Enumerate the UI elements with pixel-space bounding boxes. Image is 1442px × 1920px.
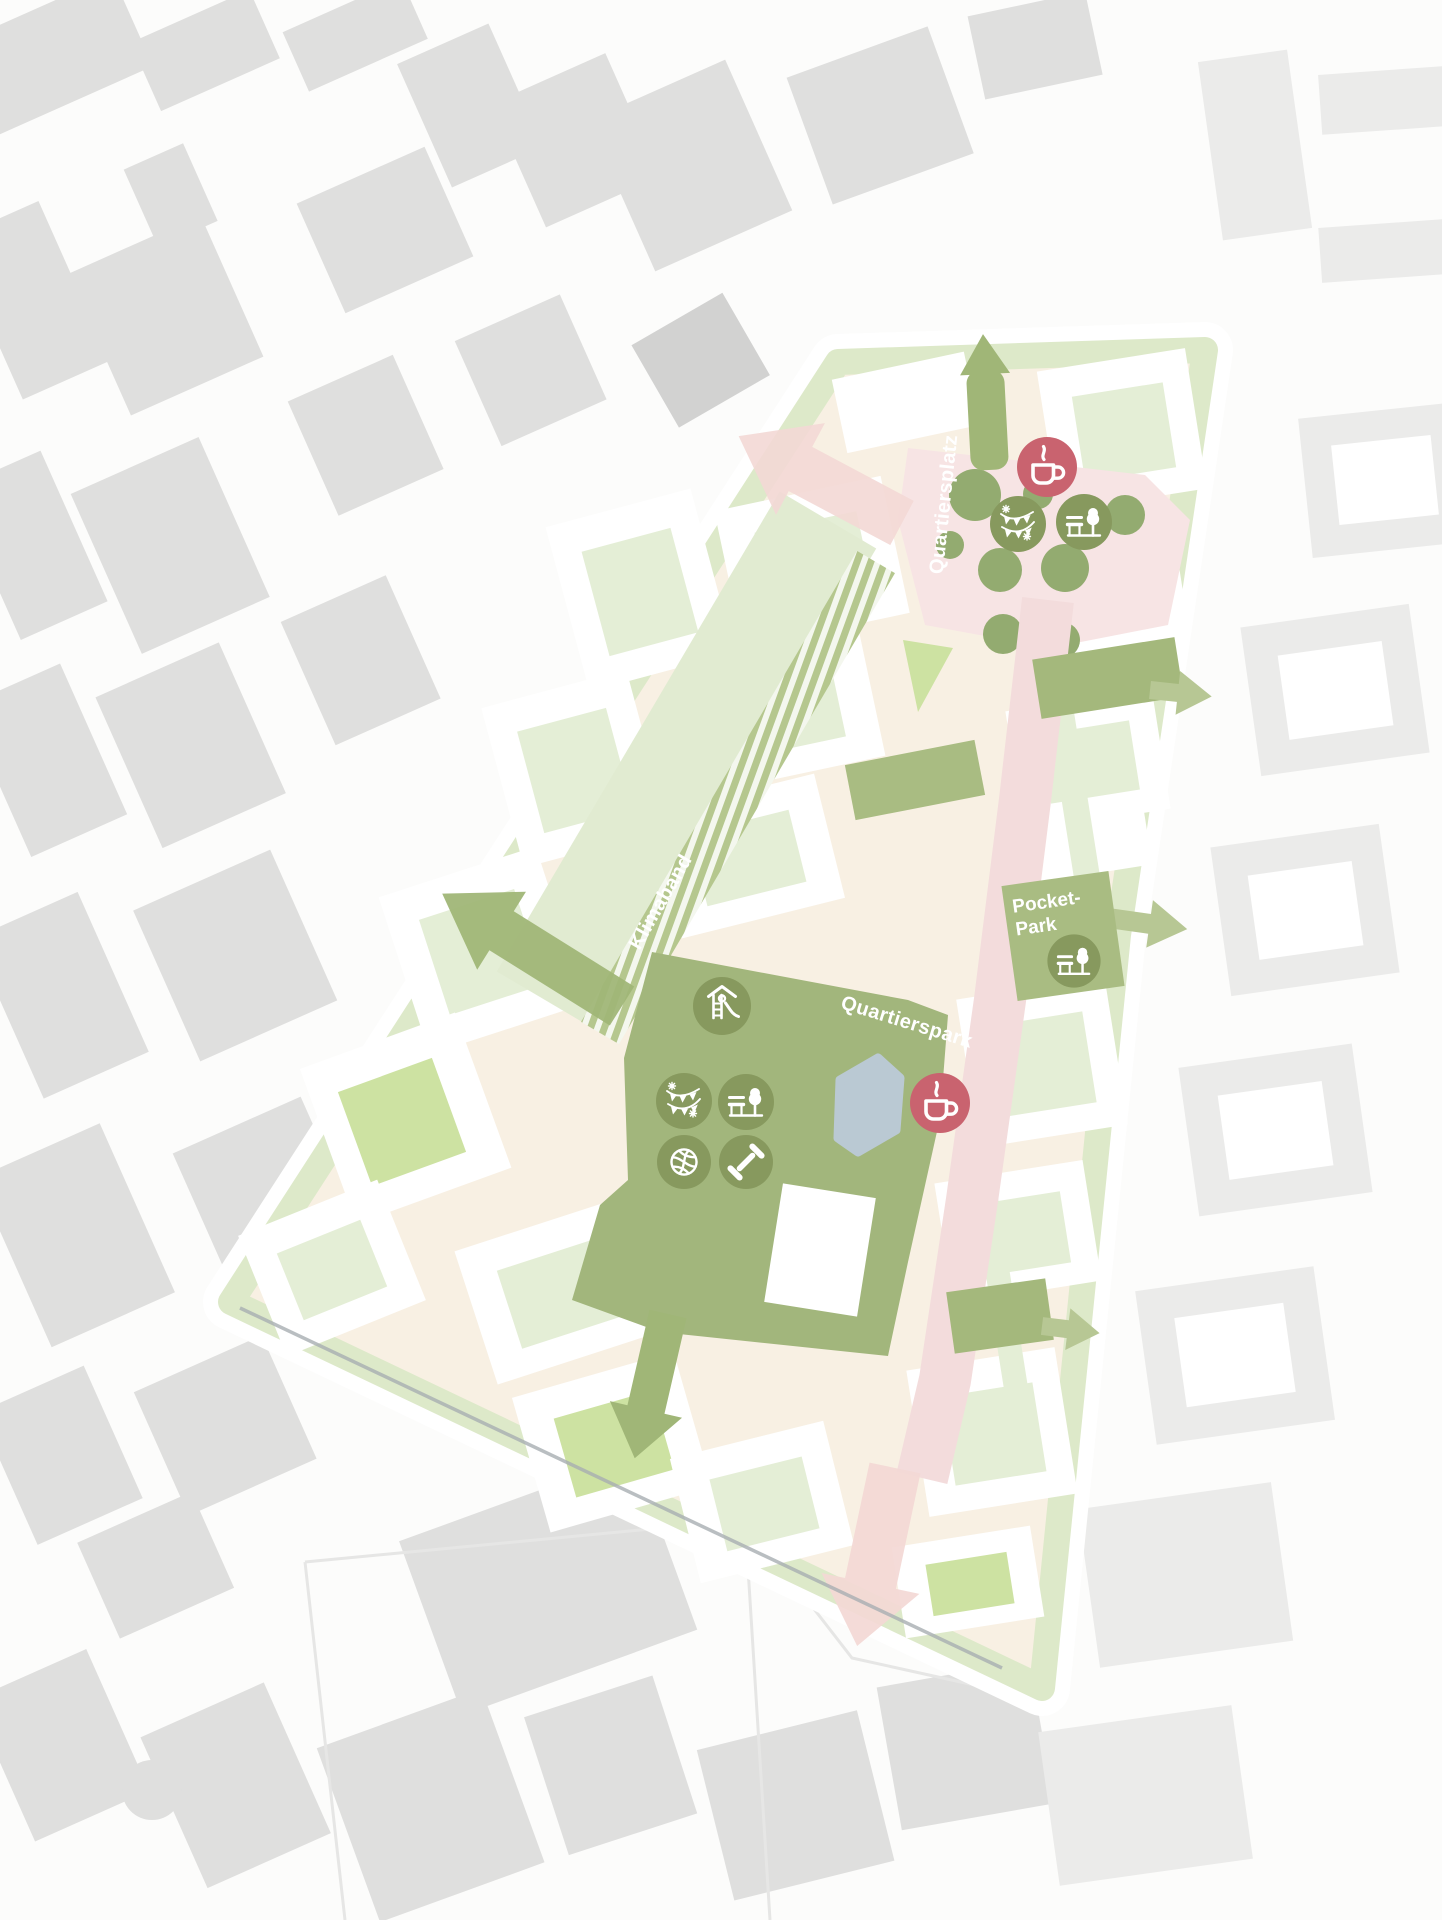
- bench-tree-icon: [1056, 494, 1112, 550]
- party-flags-icon: [990, 496, 1046, 552]
- coffee-cup-icon: [910, 1073, 970, 1133]
- coffee-cup-icon: [1017, 437, 1077, 497]
- map-canvas: Pocket- Park Quartiersplatz Klimaband Qu…: [0, 0, 1442, 1920]
- park-building: [764, 1183, 876, 1316]
- courtyard: [1072, 382, 1176, 481]
- playground-icon: [693, 977, 751, 1035]
- basketball-icon: [657, 1135, 711, 1189]
- bench-tree-icon: [718, 1074, 774, 1130]
- party-flags-icon: [656, 1073, 712, 1129]
- dumbbell-icon: [719, 1135, 773, 1189]
- park-pond: [838, 1058, 900, 1152]
- bench-tree-icon: [1047, 934, 1100, 987]
